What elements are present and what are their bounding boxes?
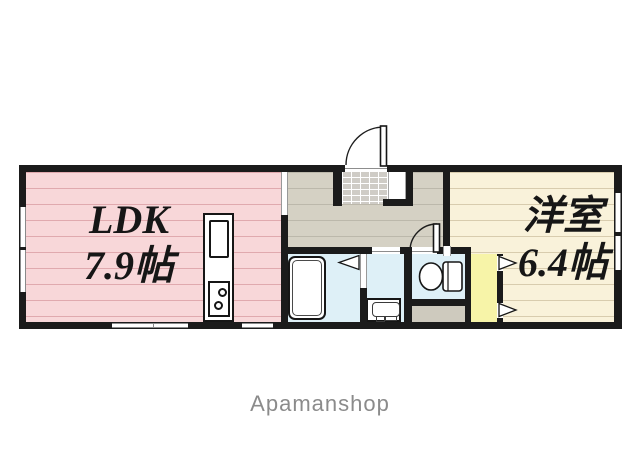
wall-hall-bottom-b <box>400 247 412 254</box>
entrance-door-icon <box>346 126 387 166</box>
entrance-doorway <box>345 164 387 172</box>
window-ldk-left-upper <box>20 207 26 247</box>
wall-hall-west <box>443 165 450 247</box>
wall-toilet-closet <box>465 254 471 322</box>
toilet-floor <box>412 254 465 299</box>
window-ldk-bottom-small <box>242 323 273 328</box>
wall-top <box>19 165 622 172</box>
western-size: 6.4帖 <box>488 239 638 286</box>
brand-watermark: Apamanshop <box>0 391 640 417</box>
wall-hall-bottom-a <box>288 247 372 254</box>
wall-bottom <box>19 322 622 329</box>
genkan-tile-area <box>342 171 388 204</box>
room-label-western: 洋室 6.4帖 <box>488 192 638 286</box>
room-label-ldk: LDK 7.9帖 <box>34 197 224 289</box>
bathtub <box>288 256 326 320</box>
service-space-floor <box>412 306 465 322</box>
wall-ldk-hall <box>281 215 288 322</box>
closet-opening-lower <box>497 303 503 318</box>
washbasin-drawer <box>385 316 397 321</box>
wall-toilet-bottom <box>412 299 465 306</box>
west-room-doorway <box>443 246 451 256</box>
western-name: 洋室 <box>488 192 638 239</box>
wall-genkan-bottom <box>383 199 413 206</box>
washbasin-bowl <box>372 302 400 317</box>
toilet-doorway <box>412 247 437 254</box>
stove-burner-icon <box>218 288 227 297</box>
wall-bath-wash <box>360 288 367 322</box>
stove-burner-icon <box>214 301 223 310</box>
bath-door-opening <box>360 254 367 288</box>
washbasin <box>366 298 401 322</box>
window-ldk-left-lower <box>20 250 26 292</box>
ldk-name: LDK <box>34 197 224 243</box>
wall-genkan-left <box>333 171 342 206</box>
floorplan-canvas: LDK 7.9帖 洋室 6.4帖 Apamanshop <box>0 0 640 455</box>
window-ldk-bottom-large <box>112 323 188 328</box>
ldk-hall-opening <box>281 172 288 215</box>
wall-wash-toilet <box>404 254 412 322</box>
ldk-size: 7.9帖 <box>34 243 224 289</box>
washroom-doorway <box>372 247 400 254</box>
genkan-recess <box>388 171 406 200</box>
wall-left <box>19 165 26 329</box>
